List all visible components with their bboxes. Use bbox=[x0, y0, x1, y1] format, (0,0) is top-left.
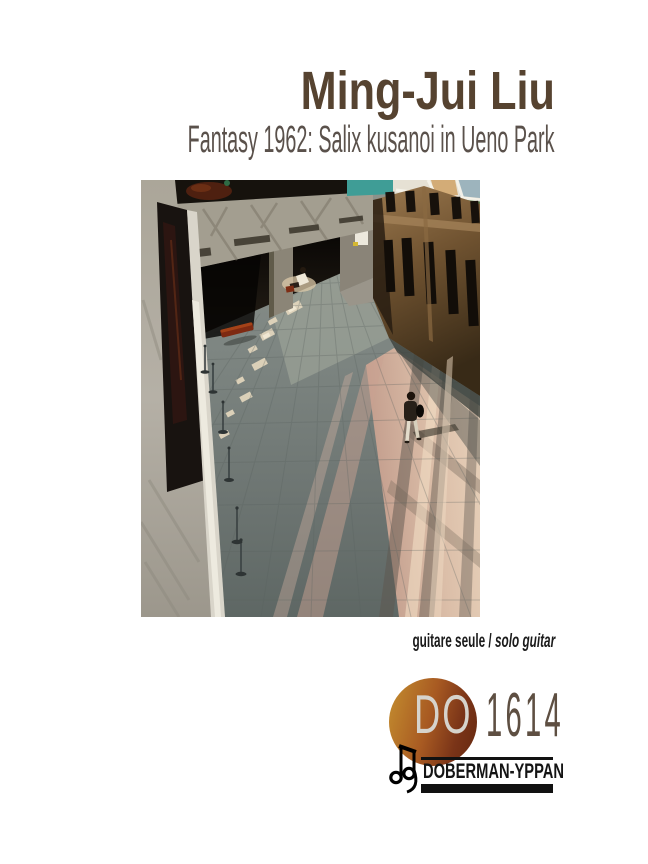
cover-photo bbox=[141, 180, 480, 617]
publisher-logo: DO 1614 DOBERMAN-YPPAN bbox=[386, 674, 558, 809]
composer-name-text: Ming-Jui Liu bbox=[301, 64, 555, 118]
cover-page: Ming-Jui Liu Fantasy 1962: Salix kusanoi… bbox=[0, 0, 648, 864]
work-title: Fantasy 1962: Salix kusanoi in Ueno Park bbox=[0, 121, 555, 159]
work-title-text: Fantasy 1962: Salix kusanoi in Ueno Park bbox=[188, 121, 555, 159]
instrumentation-french: guitare seule bbox=[412, 631, 485, 652]
instrumentation-line: guitare seule / solo guitar bbox=[325, 631, 555, 654]
publisher-name: DOBERMAN-YPPAN bbox=[423, 761, 564, 783]
publisher-rule-bottom bbox=[421, 784, 553, 793]
composer-name: Ming-Jui Liu bbox=[237, 64, 555, 118]
instrumentation-english: solo guitar bbox=[495, 631, 555, 652]
catalog-prefix: DO bbox=[414, 687, 472, 742]
catalog-number: 1614 bbox=[486, 685, 564, 747]
instrumentation-text: guitare seule / solo guitar bbox=[412, 631, 555, 654]
instrumentation-separator: / bbox=[485, 631, 495, 652]
